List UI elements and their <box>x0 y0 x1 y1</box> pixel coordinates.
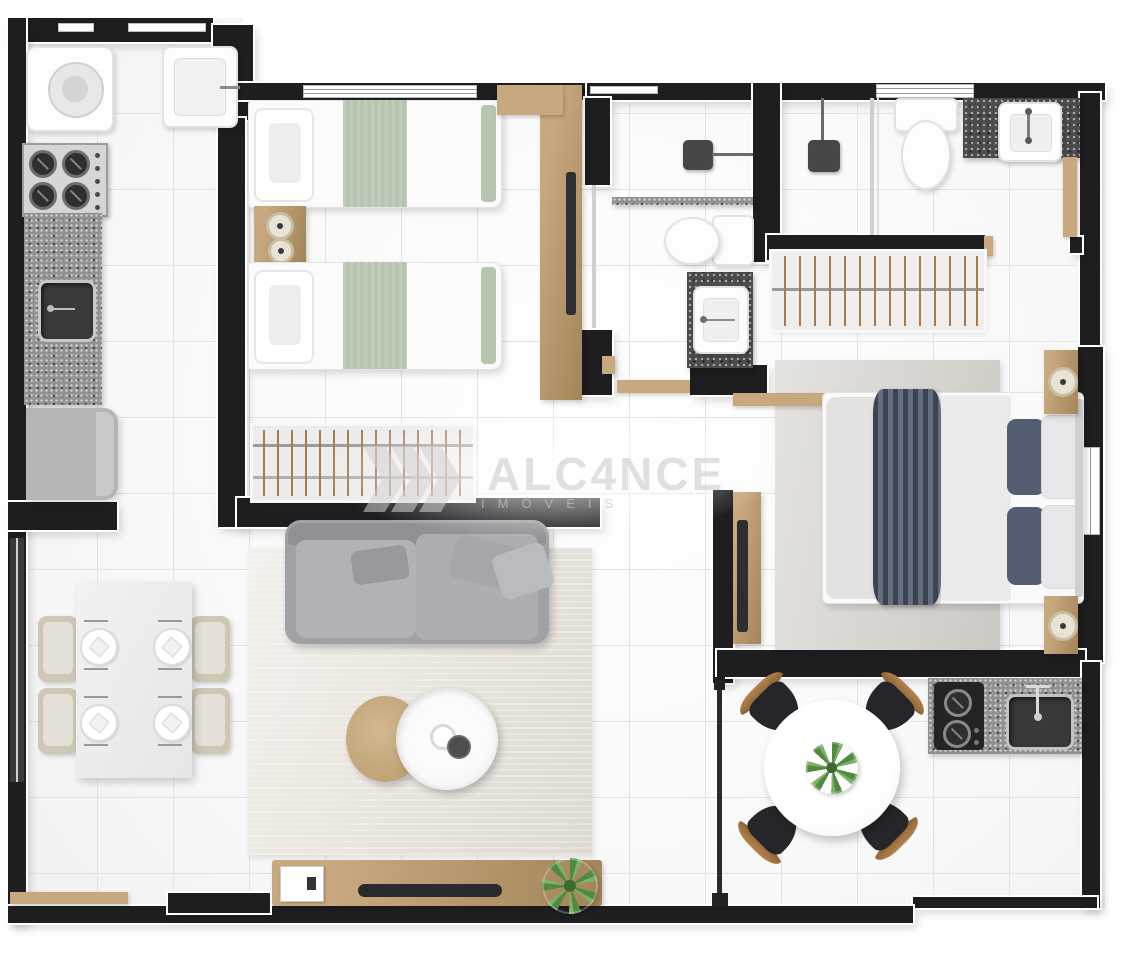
wall-twin-left <box>218 118 245 527</box>
pillow-inner <box>269 123 301 183</box>
laundry-window <box>128 23 206 32</box>
suite-bath-window <box>876 84 974 98</box>
dining-chair <box>38 616 78 682</box>
dining-chair <box>190 688 230 754</box>
clothes-rack <box>253 426 473 500</box>
tv-icon <box>358 884 502 897</box>
door-jamb <box>1070 237 1082 253</box>
plant-centerpiece <box>806 742 858 794</box>
bath-door-leaf <box>1063 157 1077 237</box>
shower-head-icon <box>683 140 713 170</box>
plant <box>542 858 598 914</box>
wall-shelf <box>733 393 825 406</box>
single-bed-1 <box>248 100 502 208</box>
twin-door-threshold <box>592 185 596 330</box>
vanity-sink <box>693 286 749 354</box>
glass-railing <box>717 677 722 905</box>
glass-partition <box>870 98 874 235</box>
glass-partition-line <box>877 98 879 235</box>
cup-dark <box>447 735 471 759</box>
cooktop-2-burner <box>934 682 984 750</box>
faucet-icon <box>700 316 707 323</box>
washer-drum <box>62 76 88 102</box>
pillow-navy <box>1007 507 1045 585</box>
headboard <box>1075 399 1083 597</box>
double-bed <box>822 392 1084 604</box>
railing-post <box>714 677 725 690</box>
shower-stem <box>821 98 824 142</box>
vanity-sink <box>998 102 1062 162</box>
toilet-bowl <box>901 120 951 190</box>
wall-top-left <box>8 18 213 42</box>
exterior-left <box>0 0 8 960</box>
round-dining-table <box>764 700 900 836</box>
tank-faucet-icon <box>220 86 240 89</box>
faucet-icon <box>1036 685 1039 715</box>
refrigerator <box>26 408 118 500</box>
gas-cooktop-4-burner <box>22 143 108 217</box>
granite-countertop <box>24 213 102 405</box>
railing-post <box>712 893 728 906</box>
washing-machine <box>26 46 114 132</box>
basin <box>1010 114 1052 152</box>
kitchen <box>22 143 122 503</box>
closet <box>772 252 984 330</box>
vanity-counter <box>963 98 1080 158</box>
exterior-strip-top <box>0 0 1126 18</box>
sheet-fold <box>941 395 1011 601</box>
master-bedroom <box>713 345 1082 650</box>
laundry-tank-sink <box>162 46 238 128</box>
living-room <box>240 515 620 915</box>
toilet-bowl <box>664 217 720 265</box>
kitchen-sink <box>38 280 96 342</box>
wall-twin-right <box>585 98 610 185</box>
exterior-bottom-right <box>913 908 1113 928</box>
green-throw <box>343 262 407 369</box>
wall-right-top <box>1080 93 1100 345</box>
laundry <box>26 42 216 132</box>
green-throw-foot <box>481 105 496 202</box>
bath2-wall-cap <box>984 236 993 256</box>
green-throw-foot <box>481 267 496 364</box>
pillow-navy <box>1007 419 1045 495</box>
sofa <box>285 520 549 644</box>
nightstand <box>254 206 306 264</box>
nightstand-bottom <box>1044 596 1078 654</box>
tv-panel <box>733 492 761 644</box>
navy-runner <box>873 389 941 605</box>
dining-area <box>30 582 240 782</box>
tv-icon <box>737 520 748 632</box>
floor-plan-canvas: ALC4NCE IMÓVEIS <box>0 0 1126 960</box>
shower-arm <box>712 153 753 156</box>
granite-counter <box>928 678 1082 754</box>
coffee-table-marble <box>396 688 498 790</box>
exterior-bottom <box>0 923 1126 960</box>
single-bed-2 <box>248 262 502 370</box>
fridge-door <box>96 412 114 496</box>
wardrobe-tv-panel <box>540 85 582 400</box>
tank-basin <box>174 58 226 116</box>
toilet <box>894 98 954 188</box>
tv-icon <box>566 172 576 315</box>
wall-balcony-right <box>1082 662 1100 908</box>
exterior-right <box>1105 0 1126 960</box>
counter-sink <box>1006 694 1074 750</box>
picture-frame <box>280 866 324 902</box>
wall-kitchen-stub <box>8 502 117 530</box>
balcony-gourmet <box>712 677 1084 907</box>
dining-chair <box>38 688 78 754</box>
pillow-inner <box>269 285 301 345</box>
dining-window <box>10 538 24 782</box>
bathroom-window <box>590 86 658 94</box>
green-throw <box>343 100 407 207</box>
clothes-rack <box>772 252 984 330</box>
wardrobe-lintel <box>497 85 563 115</box>
bench-shelf <box>10 892 128 904</box>
toilet <box>664 215 754 263</box>
suite-bathroom <box>767 98 1080 235</box>
nightstand-top <box>1044 350 1078 414</box>
laundry-window <box>58 23 94 32</box>
twin-bedroom <box>245 85 585 505</box>
dining-chair <box>190 616 230 682</box>
shower-head-icon <box>808 140 840 172</box>
dining-table <box>76 582 192 778</box>
shower-curb <box>612 197 753 205</box>
